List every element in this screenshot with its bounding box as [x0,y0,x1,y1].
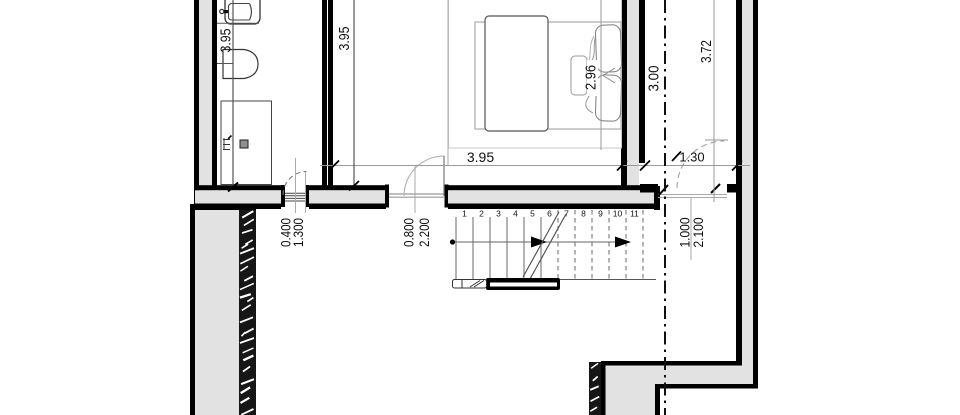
svg-text:3.95: 3.95 [218,29,235,53]
svg-text:2: 2 [479,209,484,219]
svg-text:10: 10 [613,209,623,219]
svg-text:3.95: 3.95 [336,27,353,51]
svg-text:1: 1 [462,209,467,219]
svg-text:5: 5 [530,209,535,219]
svg-text:2.96: 2.96 [584,65,600,90]
svg-text:11: 11 [630,209,639,219]
svg-text:3.95: 3.95 [467,149,494,165]
svg-text:2.100: 2.100 [690,217,706,247]
svg-text:9: 9 [598,209,603,219]
svg-text:6: 6 [547,209,552,219]
svg-text:3: 3 [496,209,501,219]
svg-text:1.30: 1.30 [679,150,704,165]
svg-text:4: 4 [513,209,518,219]
svg-text:2.200: 2.200 [416,218,432,247]
svg-text:1.300: 1.300 [290,218,306,247]
svg-text:0.800: 0.800 [400,218,416,247]
svg-text:8: 8 [581,209,586,219]
svg-text:3.72: 3.72 [698,40,715,63]
svg-text:3.00: 3.00 [646,66,663,92]
